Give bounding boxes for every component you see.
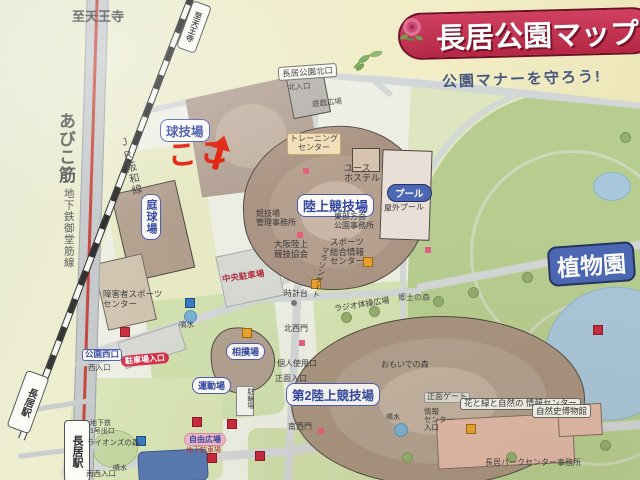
- fountain-south-label: 噴水: [113, 465, 127, 473]
- tree-icon: [433, 296, 444, 307]
- rose-icon: [396, 14, 428, 51]
- facility-icon: [363, 257, 373, 267]
- gate-marker: [425, 247, 431, 253]
- underground-parking-label: 地下駐車場: [186, 447, 221, 455]
- osaka-athletics-assoc-label: 大阪陸上 競技協会: [274, 240, 308, 259]
- info-icon: [185, 298, 195, 308]
- facility-icon: [466, 424, 476, 434]
- garden-pond-small: [593, 172, 631, 201]
- outdoor-pool-label: 屋外プール: [384, 203, 424, 213]
- southwest-gate-label: 南西門: [288, 423, 312, 432]
- park-map-sign: 至天王寺 至天王寺 あびこ筋 地下鉄御堂筋線 JR阪和線 長居駅 長居駅 地下鉄…: [0, 0, 640, 480]
- nature-museum-label: 自然史博物館: [532, 404, 591, 418]
- fountain-west-label: 噴水: [179, 321, 194, 329]
- tree-icon: [402, 452, 413, 463]
- stadium-office-label: 競技場 管理事務所: [256, 210, 296, 228]
- park-center-office-label: 長居パークセンター事務所: [485, 459, 581, 468]
- botanical-garden-label: 植物園: [547, 241, 637, 287]
- lions-forest-label: ライオンズの森: [87, 439, 139, 447]
- parking-icon: [192, 417, 202, 427]
- tree-icon: [468, 287, 479, 298]
- disabled-sports-center-label: 障害者スポーツ センター: [103, 290, 162, 309]
- subway-exit1-label: 地下鉄 1号出口: [90, 420, 115, 436]
- parking-icon: [227, 419, 237, 429]
- free-plaza-label: 自由広場: [184, 433, 226, 446]
- page-title: 長居公園マップ: [435, 10, 639, 57]
- gate-marker: [297, 232, 303, 238]
- training-center-label: トレーニング センター: [287, 133, 341, 155]
- bicycle-parking-label: 駐輪場: [246, 388, 254, 409]
- tree-icon: [620, 132, 631, 143]
- youth-hostel-label: ユース ホステル: [344, 163, 380, 183]
- fountain-basin-east: [394, 423, 408, 437]
- sports-info-center-label: スポーツ 総合情報 センター: [330, 238, 364, 267]
- subtitle: 公園マナーを守ろう!: [442, 69, 602, 91]
- lions-forest-grove: [92, 430, 138, 468]
- sumo-ring-label: 相撲場: [226, 343, 265, 360]
- second-stadium-label: 第2陸上競技場: [286, 383, 380, 406]
- to-tennoji-label: 至天王寺: [72, 10, 124, 25]
- tree-icon: [341, 312, 352, 323]
- tree-icon: [522, 272, 533, 283]
- gate-marker: [299, 340, 305, 346]
- west-entrance-label: 西入口: [88, 364, 111, 372]
- leaf-sprig-icon: [352, 46, 394, 77]
- southwest-entrance-label: 南西入口: [86, 470, 116, 478]
- parking-icon: [120, 327, 130, 337]
- northwest-gate-label: 北西門: [284, 325, 308, 334]
- midosuji-line-label: 地下鉄御堂筋線: [62, 188, 74, 269]
- omoide-forest-label: おもいでの森: [381, 361, 429, 370]
- parking-icon: [255, 451, 265, 461]
- clock-tower-label: 時計台: [284, 290, 308, 299]
- tree-icon: [600, 440, 611, 451]
- sports-field-label: 運動場: [192, 377, 231, 394]
- info-center-entrance-label: 情報 センター 入口: [424, 408, 454, 432]
- title-banner: 長居公園マップ: [397, 7, 640, 61]
- park-west-gate-label: 公園西口: [82, 349, 122, 361]
- kyodo-forest-label: 郷土の森: [398, 294, 430, 303]
- clock-tower-icon: [291, 300, 297, 306]
- abiko-suji-label: あびこ筋: [56, 112, 75, 184]
- north-entrance-label: 北入口: [288, 82, 311, 92]
- east-park-office-label: 東部方面 公園事務所: [334, 213, 374, 231]
- fountain-east-label: 噴水: [386, 414, 400, 422]
- tennis-courts-label: 庭球場: [141, 194, 161, 240]
- personal-use-gate-label: 個人使用口: [277, 360, 317, 369]
- facility-icon: [242, 328, 252, 338]
- gate-marker: [303, 168, 309, 174]
- gate-marker: [318, 428, 324, 434]
- pool-label: プール: [387, 184, 432, 202]
- parking-icon: [593, 325, 603, 335]
- jr-nagai-station: 長居駅: [6, 370, 49, 435]
